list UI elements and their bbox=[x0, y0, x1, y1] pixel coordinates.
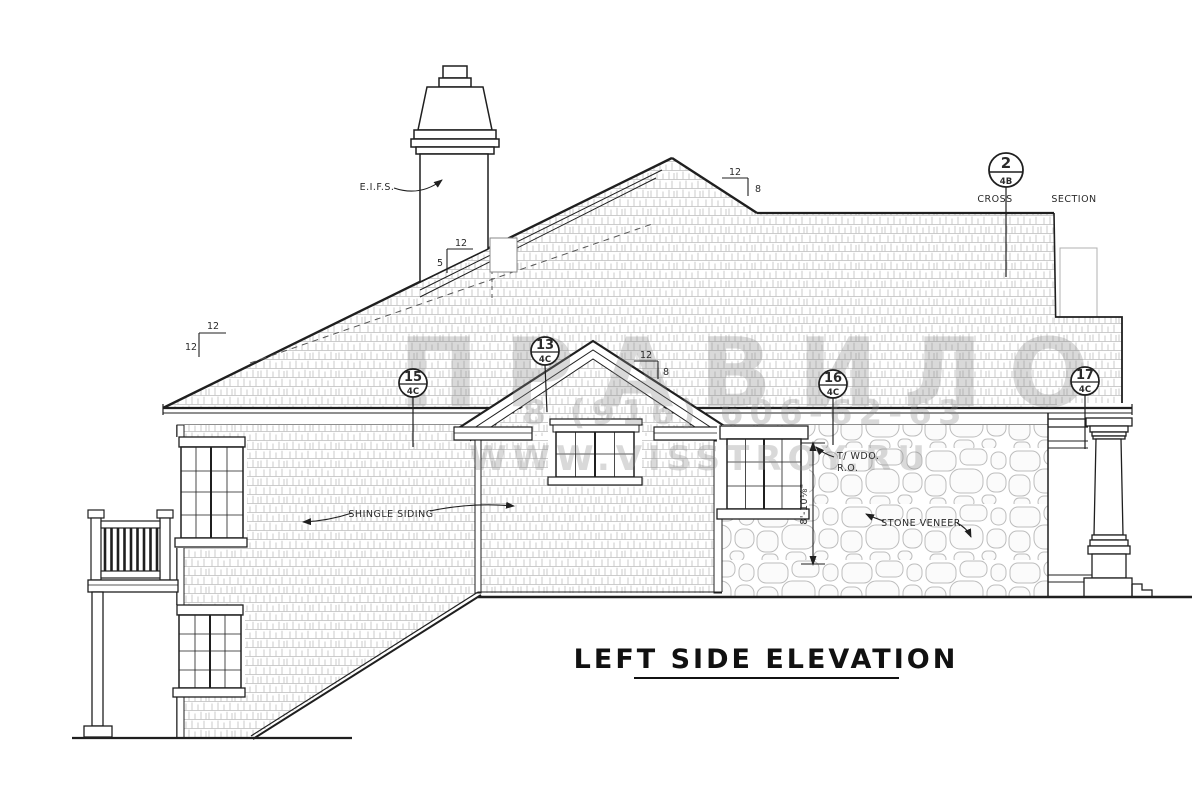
chimney-cap bbox=[418, 87, 492, 130]
porch bbox=[1048, 418, 1152, 597]
pitch-rise: 5 bbox=[437, 258, 443, 269]
column-plinth bbox=[1084, 578, 1132, 597]
pitch-rise: 12 bbox=[185, 342, 197, 353]
callout-sheet: 4C bbox=[827, 388, 839, 398]
callout-number: 2 bbox=[1001, 154, 1011, 172]
elevation-sheet: ПРАВИЛО 8 (916) 606-62-63 WWW.VISSTROY.R… bbox=[0, 0, 1200, 800]
callout-number: 17 bbox=[1076, 368, 1094, 383]
callout-sheet: 4C bbox=[1079, 385, 1091, 395]
newel-cap-left bbox=[88, 510, 104, 518]
callout-number: 15 bbox=[404, 370, 422, 385]
shingle-siding-text: SHINGLE SIDING bbox=[348, 509, 433, 520]
top-rail bbox=[101, 521, 160, 528]
deck-post bbox=[92, 592, 103, 726]
deck-post-base bbox=[84, 726, 112, 737]
window-sill bbox=[175, 538, 247, 547]
pitch-mark-left: 12 12 bbox=[185, 321, 226, 357]
section-text: SECTION bbox=[1051, 194, 1096, 205]
cross-text: CROSS bbox=[977, 194, 1012, 205]
pitch-rise: 8 bbox=[755, 184, 761, 195]
background-structure bbox=[1060, 248, 1097, 317]
callout-number: 16 bbox=[824, 371, 842, 386]
eifs-text: E.I.F.S. bbox=[360, 182, 395, 193]
window-sill bbox=[173, 688, 245, 697]
chimney bbox=[411, 66, 499, 282]
dim-text: 8'-10⅛" bbox=[799, 483, 810, 524]
pitch-run: 12 bbox=[729, 167, 741, 178]
pitch-rise: 8 bbox=[663, 367, 669, 378]
callout-sheet: 4C bbox=[539, 355, 551, 365]
callout-number: 13 bbox=[536, 338, 554, 353]
watermark-phone: 8 (916) 606-62-63 bbox=[522, 393, 967, 433]
newel-post-left bbox=[91, 518, 101, 580]
pitch-run: 12 bbox=[207, 321, 219, 332]
pitch-run: 12 bbox=[640, 350, 652, 361]
callout-sheet: 4B bbox=[1000, 177, 1012, 187]
porch-steps bbox=[1132, 584, 1152, 597]
stone-veneer-text: STONE VENEER bbox=[881, 518, 961, 529]
deck-rim bbox=[88, 580, 178, 592]
drawing-title: LEFT SIDE ELEVATION bbox=[574, 644, 959, 678]
window-upper-left bbox=[175, 437, 247, 548]
roof-step bbox=[490, 238, 517, 272]
t-wdo-text: T/ WDO. bbox=[836, 451, 879, 462]
chimney-flue bbox=[443, 66, 467, 78]
porch-column bbox=[1084, 418, 1132, 597]
ro-text: R.O. bbox=[837, 463, 858, 474]
newel-post-right bbox=[160, 518, 170, 580]
callout-sheet: 4C bbox=[407, 387, 419, 397]
newel-cap-right bbox=[157, 510, 173, 518]
window-lower-left bbox=[173, 605, 245, 697]
elevation-drawing: ПРАВИЛО 8 (916) 606-62-63 WWW.VISSTROY.R… bbox=[0, 0, 1200, 800]
window-sill bbox=[717, 509, 809, 519]
pitch-run: 12 bbox=[455, 238, 467, 249]
deck bbox=[84, 510, 178, 737]
title-text: LEFT SIDE ELEVATION bbox=[574, 644, 959, 675]
balusters bbox=[105, 528, 157, 571]
pitch-mark-main: 12 8 bbox=[722, 167, 761, 196]
bottom-rail bbox=[101, 571, 160, 578]
